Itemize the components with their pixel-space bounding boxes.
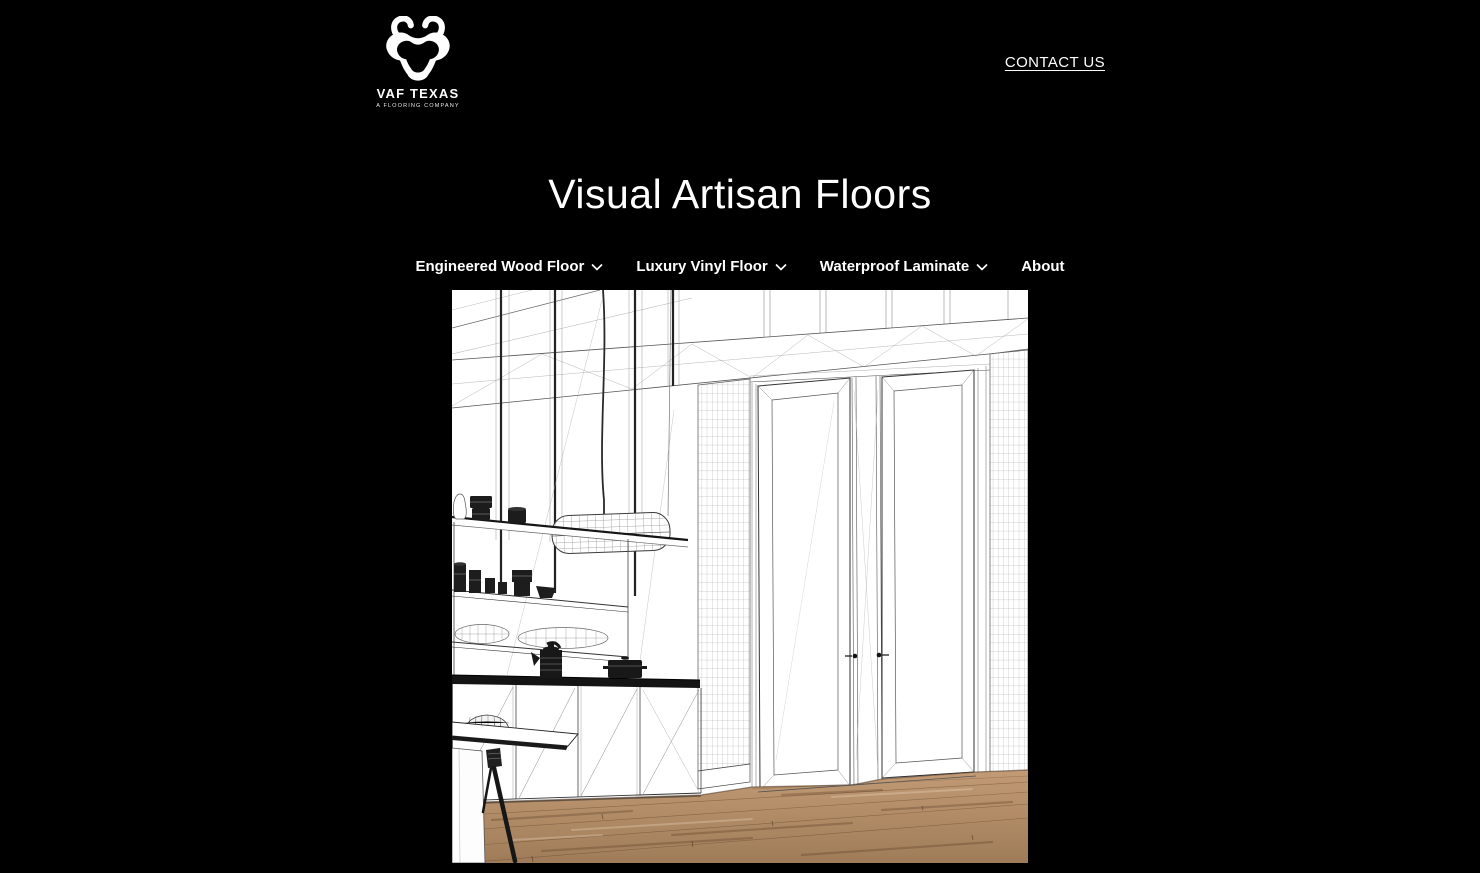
nav-item-luxury-vinyl-floor[interactable]: Luxury Vinyl Floor <box>636 258 786 275</box>
nav-item-waterproof-laminate[interactable]: Waterproof Laminate <box>820 258 988 275</box>
nav-item-about[interactable]: About <box>1021 258 1064 275</box>
chevron-down-icon <box>591 263 603 271</box>
logo-name: VAF TEXAS <box>377 86 460 101</box>
bull-logo-icon <box>382 16 454 82</box>
nav-item-label: Engineered Wood Floor <box>415 258 584 275</box>
chevron-down-icon <box>775 263 787 271</box>
wireframe-kitchen-illustration <box>452 290 1028 863</box>
site-logo[interactable]: VAF TEXAS A FLOORING COMPANY <box>375 16 461 109</box>
contact-us-link[interactable]: CONTACT US <box>1005 54 1105 71</box>
page-title: Visual Artisan Floors <box>375 171 1105 218</box>
page-container: VAF TEXAS A FLOORING COMPANY CONTACT US … <box>375 0 1105 863</box>
chevron-down-icon <box>976 263 988 271</box>
header: VAF TEXAS A FLOORING COMPANY CONTACT US <box>375 0 1105 109</box>
nav-item-label: About <box>1021 258 1064 275</box>
nav-item-label: Luxury Vinyl Floor <box>636 258 767 275</box>
logo-tagline: A FLOORING COMPANY <box>376 103 459 109</box>
main-nav: Engineered Wood Floor Luxury Vinyl Floor… <box>375 258 1105 275</box>
hero-image-wireframe-kitchen <box>452 290 1028 863</box>
nav-item-engineered-wood-floor[interactable]: Engineered Wood Floor <box>415 258 603 275</box>
nav-item-label: Waterproof Laminate <box>820 258 969 275</box>
